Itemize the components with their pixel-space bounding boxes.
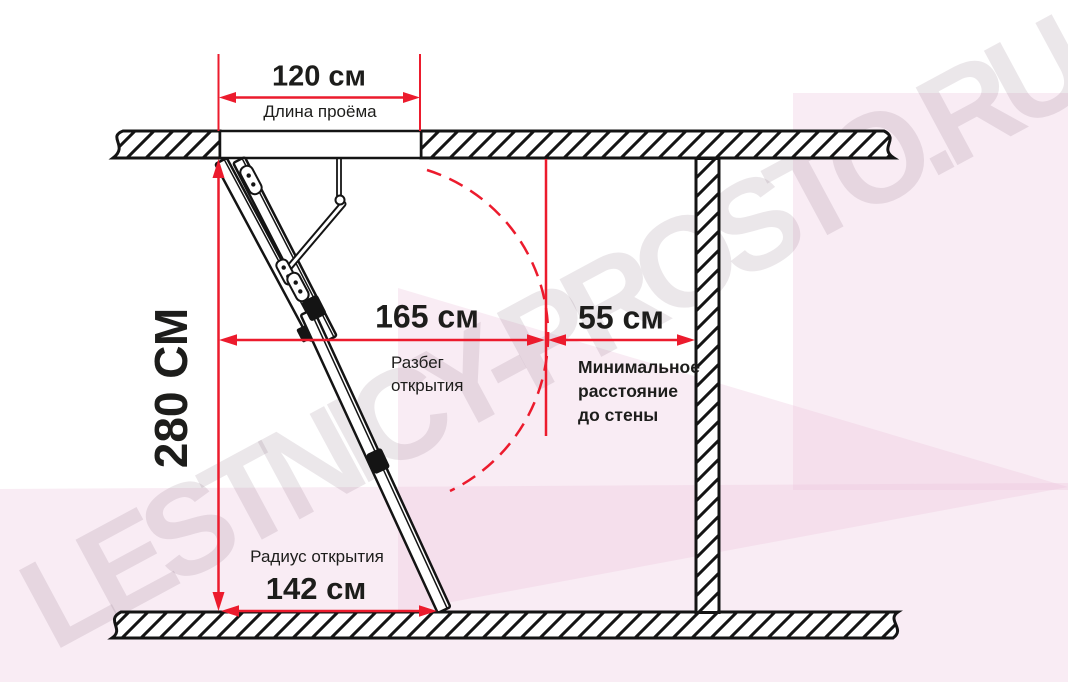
dim-opening-run-value: 165 см (375, 299, 479, 336)
dim-opening-radius-label: Радиус открытия (250, 547, 384, 567)
dim-opening-length-value: 120 см (272, 61, 366, 94)
dim-wall-distance-value: 55 см (578, 300, 664, 337)
attic-ladder-dimension-diagram: LESTNICY-PROSTO.RU (0, 0, 1068, 682)
dim-ceiling-height-lines (213, 159, 225, 611)
dim-ceiling-height-value: 280 СМ (144, 308, 198, 468)
dim-opening-run-lines (219, 334, 545, 346)
opening-box (220, 131, 421, 158)
dim-opening-run-label: Разбег открытия (391, 351, 483, 397)
floor-slab (112, 612, 898, 638)
dim-wall-distance-label: Минимальное расстояние до стены (578, 355, 700, 427)
dim-opening-length-label: Длина проёма (263, 102, 376, 122)
dim-opening-radius-value: 142 см (266, 571, 367, 607)
